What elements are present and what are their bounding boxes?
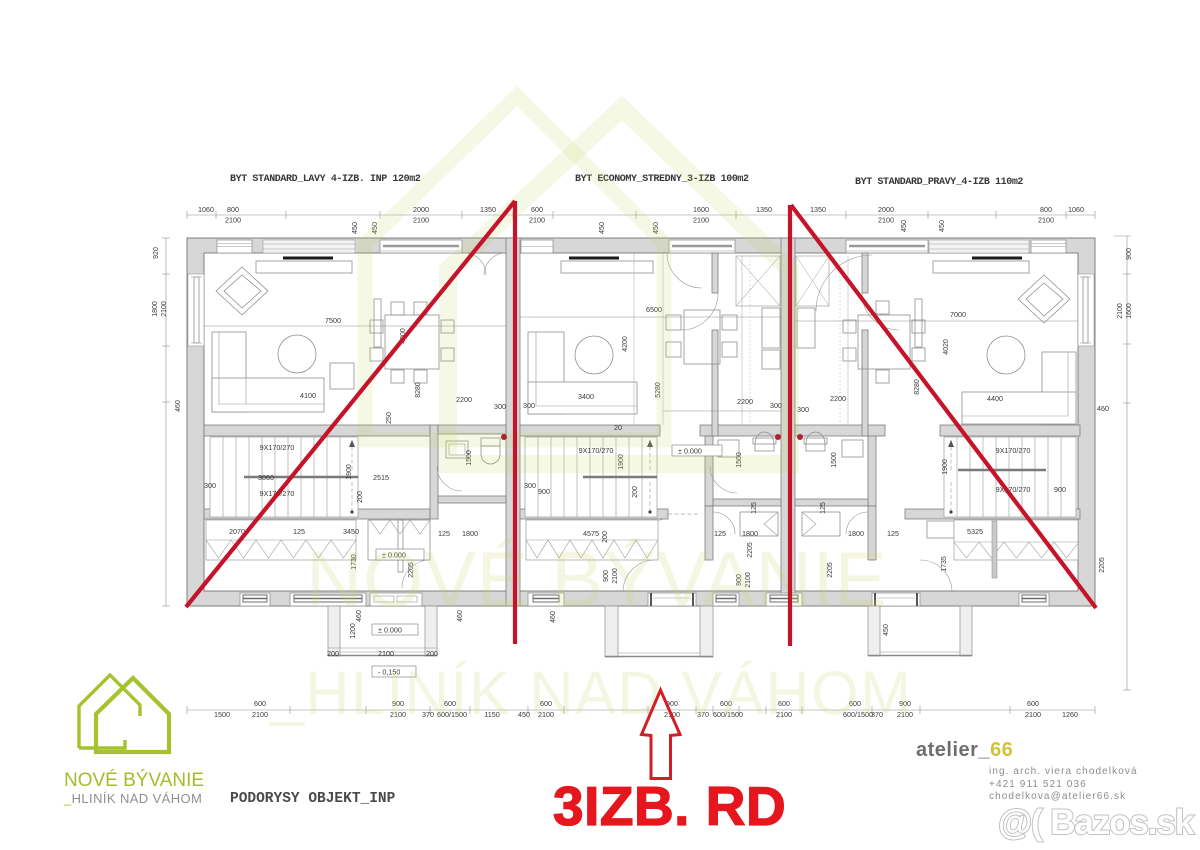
svg-text:2100: 2100 (878, 216, 894, 225)
svg-text:125: 125 (751, 502, 758, 514)
svg-text:300: 300 (524, 481, 536, 490)
svg-text:300: 300 (204, 481, 216, 490)
svg-text:1350: 1350 (480, 205, 496, 214)
svg-text:2000: 2000 (413, 205, 429, 214)
svg-text:1060: 1060 (1068, 205, 1084, 214)
svg-text:4100: 4100 (300, 391, 316, 400)
svg-text:3400: 3400 (578, 392, 594, 401)
svg-text:200: 200 (632, 486, 639, 498)
svg-text:800: 800 (1040, 205, 1052, 214)
svg-text:2100: 2100 (225, 216, 241, 225)
svg-text:600: 600 (1027, 699, 1039, 708)
svg-text:2100: 2100 (252, 710, 268, 719)
svg-text:1350: 1350 (810, 205, 826, 214)
svg-text:2100: 2100 (1117, 303, 1124, 319)
svg-text:5325: 5325 (967, 527, 983, 536)
svg-text:2100: 2100 (1038, 216, 1054, 225)
svg-text:920: 920 (153, 247, 160, 259)
svg-text:+421 911 521 036: +421 911 521 036 (989, 779, 1087, 790)
svg-text:BYT STANDARD_LAVY 4-IZB. INP 1: BYT STANDARD_LAVY 4-IZB. INP 120m2 (230, 174, 421, 185)
svg-text:460: 460 (1097, 404, 1109, 413)
svg-text:900: 900 (1054, 485, 1066, 494)
svg-text:200: 200 (327, 649, 339, 658)
svg-text:_HLINÍK NAD VÁHOM: _HLINÍK NAD VÁHOM (63, 791, 202, 806)
svg-text:250: 250 (386, 412, 393, 424)
svg-text:NOVÉ BÝVANIE: NOVÉ BÝVANIE (306, 535, 887, 623)
svg-text:1800: 1800 (152, 301, 159, 317)
svg-text:3IZB. RD: 3IZB. RD (553, 775, 786, 837)
svg-text:450: 450 (937, 220, 946, 232)
svg-text:900: 900 (538, 487, 550, 496)
svg-text:4400: 4400 (987, 394, 1003, 403)
svg-text:2100: 2100 (413, 216, 429, 225)
svg-text:600: 600 (531, 205, 543, 214)
svg-text:900: 900 (1126, 248, 1133, 260)
svg-text:1600: 1600 (693, 205, 709, 214)
svg-text:4200: 4200 (622, 336, 629, 352)
svg-text:125: 125 (887, 529, 899, 538)
svg-text:_HLINÍK NAD VÁHOM: _HLINÍK NAD VÁHOM (269, 659, 912, 727)
svg-text:450: 450 (350, 222, 359, 234)
svg-text:20: 20 (614, 423, 622, 432)
svg-text:2515: 2515 (373, 473, 389, 482)
svg-text:@( Bazos.sk: @( Bazos.sk (998, 803, 1195, 842)
svg-text:200: 200 (426, 649, 438, 658)
svg-text:2100: 2100 (529, 216, 545, 225)
svg-text:PODORYSY OBJEKT_INP: PODORYSY OBJEKT_INP (230, 791, 396, 807)
svg-text:2100: 2100 (693, 216, 709, 225)
svg-text:460: 460 (175, 400, 182, 412)
svg-text:300: 300 (494, 402, 506, 411)
svg-text:4020: 4020 (943, 339, 950, 355)
svg-text:9X170/270: 9X170/270 (996, 446, 1031, 455)
svg-text:7000: 7000 (950, 310, 966, 319)
svg-text:9X170/270: 9X170/270 (260, 443, 295, 452)
svg-text:1600: 1600 (1126, 303, 1133, 319)
svg-text:1060: 1060 (198, 205, 214, 214)
svg-text:atelier_66: atelier_66 (916, 739, 1013, 761)
svg-text:2205: 2205 (1099, 557, 1106, 573)
svg-text:1900: 1900 (942, 459, 949, 475)
svg-text:1735: 1735 (941, 556, 948, 572)
svg-text:1260: 1260 (1062, 710, 1078, 719)
svg-text:ing. arch. viera chodelková: ing. arch. viera chodelková (989, 766, 1138, 777)
svg-text:1350: 1350 (756, 205, 772, 214)
svg-text:± 0.000: ± 0.000 (378, 626, 402, 635)
svg-text:7500: 7500 (325, 316, 341, 325)
svg-text:2100: 2100 (161, 301, 168, 317)
svg-text:NOVÉ BÝVANIE: NOVÉ BÝVANIE (64, 770, 204, 791)
svg-text:8280: 8280 (914, 379, 921, 395)
svg-text:± 0.000: ± 0.000 (678, 447, 702, 456)
svg-text:1200: 1200 (350, 623, 357, 639)
svg-text:chodelkova@atelier66.sk: chodelkova@atelier66.sk (989, 791, 1126, 802)
svg-text:2200: 2200 (830, 394, 846, 403)
svg-text:600: 600 (254, 699, 266, 708)
svg-text:2100: 2100 (1025, 710, 1041, 719)
svg-text:3060: 3060 (258, 473, 274, 482)
svg-text:BYT STANDARD_PRAVY_4-IZB 110m2: BYT STANDARD_PRAVY_4-IZB 110m2 (855, 177, 1023, 188)
svg-text:450: 450 (883, 624, 890, 636)
svg-text:2100: 2100 (378, 649, 394, 658)
svg-text:2200: 2200 (456, 395, 472, 404)
svg-text:8280: 8280 (415, 382, 422, 398)
svg-text:800: 800 (227, 205, 239, 214)
svg-text:1500: 1500 (831, 452, 838, 468)
svg-text:1900: 1900 (346, 464, 353, 480)
svg-text:125: 125 (293, 527, 305, 536)
svg-text:9X170/270: 9X170/270 (996, 485, 1031, 494)
svg-text:125: 125 (820, 502, 827, 514)
svg-text:300: 300 (770, 401, 782, 410)
svg-text:200: 200 (357, 491, 364, 503)
svg-text:2000: 2000 (878, 205, 894, 214)
svg-text:1500: 1500 (214, 710, 230, 719)
svg-text:450: 450 (899, 220, 908, 232)
svg-text:2200: 2200 (737, 397, 753, 406)
svg-text:300: 300 (523, 401, 535, 410)
svg-text:450: 450 (597, 222, 606, 234)
